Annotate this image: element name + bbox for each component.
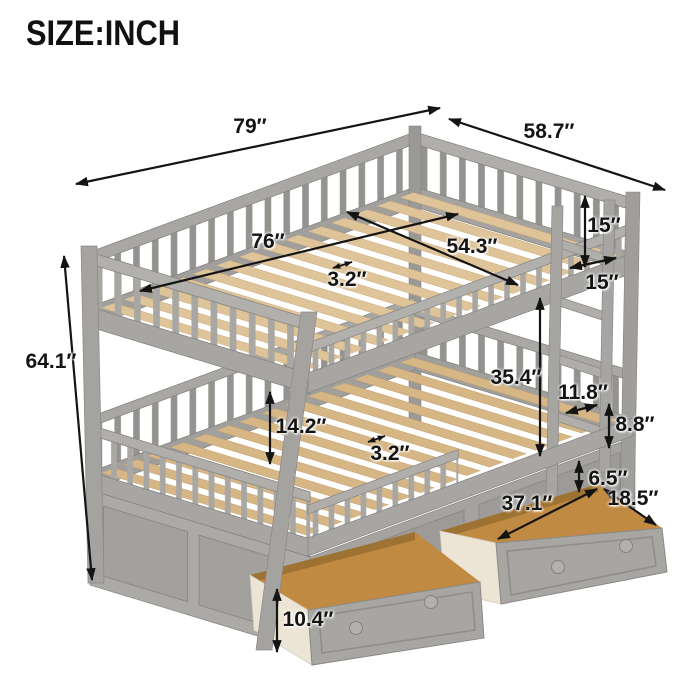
bed-illustration bbox=[0, 0, 700, 700]
dim-top-slat-length: 76″ bbox=[251, 230, 284, 254]
page-title: SIZE:INCH bbox=[26, 14, 180, 54]
dim-bottom-slat-gap: 3.2″ bbox=[370, 442, 409, 466]
dim-top-end-rail: 15″ bbox=[585, 271, 618, 295]
dim-top-slat-width: 54.3″ bbox=[447, 235, 498, 259]
product-dimension-diagram: SIZE:INCH 79″ 58.7″ 64.1″ 76″ 54.3″ 3.2″… bbox=[0, 0, 700, 700]
dim-drawer-length: 37.1″ bbox=[502, 492, 553, 516]
dim-ladder-rung: 8.8″ bbox=[615, 413, 654, 437]
dim-overall-height: 64.1″ bbox=[26, 350, 77, 374]
drawer-knob bbox=[425, 596, 438, 609]
dim-guardrail-height: 14.2″ bbox=[276, 415, 327, 439]
drawer-knob bbox=[620, 540, 633, 553]
dim-top-slat-gap: 3.2″ bbox=[327, 268, 366, 292]
dim-ladder-width: 11.8″ bbox=[558, 381, 608, 405]
drawer-knob bbox=[552, 561, 565, 574]
dim-drawer-depth: 18.5″ bbox=[608, 487, 659, 511]
drawer-knob bbox=[350, 622, 363, 635]
dim-bunk-clearance: 35.4″ bbox=[491, 366, 542, 390]
dim-overall-length: 79″ bbox=[233, 115, 266, 139]
dim-overall-width: 58.7″ bbox=[524, 120, 575, 144]
dim-drawer-height: 10.4″ bbox=[283, 608, 334, 632]
dim-top-rail-height: 15″ bbox=[587, 214, 620, 238]
